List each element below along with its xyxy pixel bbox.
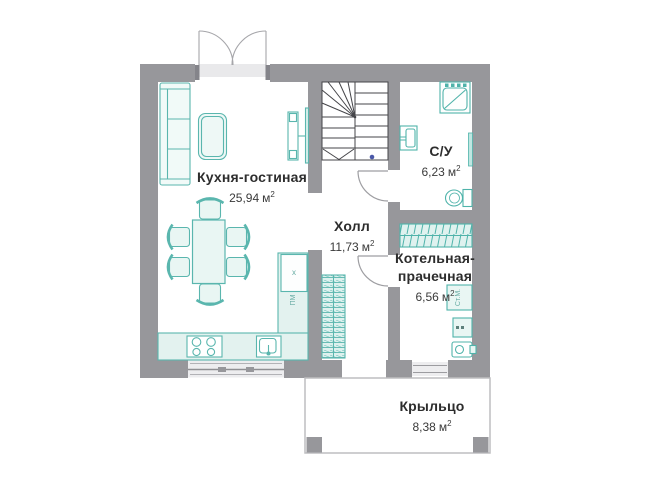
- room-area: 25,94м2: [197, 188, 307, 205]
- fridge-mark-label: х: [292, 268, 296, 277]
- porch-post-left: [307, 437, 323, 453]
- room-label-hall: Холл 11,73м2: [330, 217, 375, 254]
- kitchen-sink-icon: [257, 336, 282, 357]
- toilet-icon: [446, 190, 473, 207]
- room-name-line2: прачечная: [395, 267, 475, 285]
- washbasin-icon: [400, 126, 417, 150]
- room-label-bathroom: С/У 6,23м2: [421, 142, 460, 179]
- dining-table: [193, 220, 226, 284]
- drying-rack: [400, 224, 472, 247]
- porch-post-right: [473, 437, 489, 453]
- room-name: Холл: [330, 217, 375, 235]
- tv-unit: [288, 108, 309, 163]
- coffee-table: [199, 114, 227, 160]
- floor-plan: х ПМ Ст.М.: [0, 0, 651, 502]
- room-area: 6,56м2: [395, 287, 475, 304]
- stove-icon: [187, 336, 222, 357]
- boiler-icon: [453, 318, 472, 337]
- tv-screen: [306, 108, 309, 163]
- room-label-porch: Крыльцо 8,38м2: [399, 397, 464, 434]
- kitchen-window: [188, 361, 284, 378]
- boiler-room-door: [358, 256, 388, 286]
- floor-plan-drawing: х ПМ Ст.М.: [0, 0, 651, 502]
- room-name: Кухня-гостиная: [197, 168, 307, 186]
- towel-rail-icon: [469, 133, 473, 166]
- room-label-kitchen-living: Кухня-гостиная 25,94м2: [197, 168, 307, 205]
- sofa: [160, 83, 190, 185]
- staircase: [322, 82, 388, 160]
- room-label-boiler-laundry: Котельная- прачечная 6,56м2: [395, 249, 475, 304]
- bathroom-door: [358, 171, 388, 201]
- room-name: С/У: [421, 142, 460, 160]
- boiler-window: [412, 362, 448, 376]
- room-name-line1: Котельная-: [395, 249, 475, 267]
- room-area: 8,38м2: [399, 417, 464, 434]
- entrance-double-door: [195, 31, 270, 80]
- room-name: Крыльцо: [399, 397, 464, 415]
- hall-wardrobe: [322, 275, 345, 358]
- room-area: 6,23м2: [421, 162, 460, 179]
- room-area: 11,73м2: [330, 237, 375, 254]
- shower-icon: [440, 82, 470, 113]
- water-heater-icon: [452, 342, 476, 357]
- dishwasher-label: ПМ: [290, 294, 297, 305]
- stair-marker-dot: [370, 155, 375, 160]
